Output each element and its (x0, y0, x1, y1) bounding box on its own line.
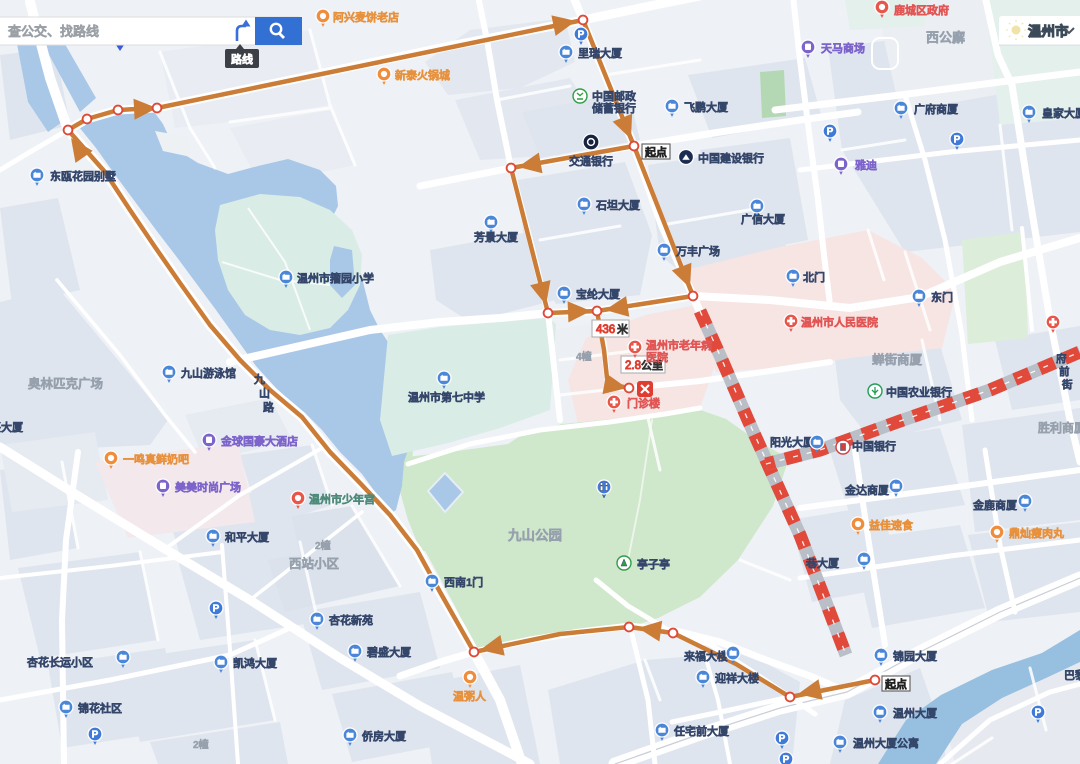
svg-text:温州市: 温州市 (1028, 23, 1069, 39)
svg-text:迎祥大楼: 迎祥大楼 (715, 671, 759, 685)
svg-text:阿兴麦饼老店: 阿兴麦饼老店 (333, 10, 399, 24)
svg-text:九: 九 (253, 372, 265, 386)
svg-text:金鹿商厦: 金鹿商厦 (972, 498, 1018, 512)
svg-text:中国银行: 中国银行 (852, 439, 896, 453)
svg-text:凯鸿大厦: 凯鸿大厦 (233, 656, 278, 670)
svg-text:温州市老年病: 温州市老年病 (646, 338, 712, 352)
svg-text:飞鹏大厦: 飞鹏大厦 (684, 100, 729, 114)
svg-text:金球国豪大酒店: 金球国豪大酒店 (220, 434, 298, 448)
svg-text:西南1门: 西南1门 (444, 575, 483, 589)
svg-text:九山游泳馆: 九山游泳馆 (180, 366, 236, 380)
svg-text:来福大楼: 来福大楼 (683, 649, 728, 663)
svg-text:2幢: 2幢 (193, 738, 209, 751)
svg-text:交通银行: 交通银行 (569, 154, 613, 168)
svg-text:西公廨: 西公廨 (926, 30, 965, 45)
svg-text:九山公园: 九山公园 (507, 528, 562, 543)
svg-text:436: 436 (596, 324, 615, 336)
svg-text:里瑞大厦: 里瑞大厦 (578, 46, 623, 60)
svg-text:4幢: 4幢 (576, 350, 592, 363)
svg-text:雅迪: 雅迪 (855, 158, 877, 172)
svg-text:任宅前大厦: 任宅前大厦 (673, 724, 730, 738)
svg-text:芳景大厦: 芳景大厦 (474, 230, 519, 244)
svg-text:街: 街 (1061, 378, 1073, 391)
svg-text:石坦大厦: 石坦大厦 (595, 198, 641, 212)
svg-text:起点: 起点 (645, 146, 667, 159)
svg-text:北门: 北门 (803, 270, 825, 284)
svg-text:鹿城区政府: 鹿城区政府 (894, 3, 949, 17)
svg-text:广信大厦: 广信大厦 (741, 212, 786, 226)
svg-text:东瓯花园别墅: 东瓯花园别墅 (50, 169, 116, 183)
svg-text:新泰火锅城: 新泰火锅城 (395, 68, 450, 82)
svg-text:温州市人民医院: 温州市人民医院 (801, 315, 878, 329)
svg-text:中国农业银行: 中国农业银行 (886, 385, 952, 399)
svg-text:亭子亭: 亭子亭 (637, 557, 670, 571)
svg-text:皇家大厦: 皇家大厦 (1042, 106, 1080, 120)
svg-text:2幢: 2幢 (315, 539, 331, 552)
svg-text:山: 山 (259, 386, 270, 400)
svg-text:益佳速食: 益佳速食 (869, 518, 914, 532)
svg-text:温州市第七中学: 温州市第七中学 (408, 390, 485, 404)
svg-text:万丰广场: 万丰广场 (675, 244, 720, 258)
svg-text:巷大厦: 巷大厦 (805, 556, 840, 570)
svg-text:广府商厦: 广府商厦 (914, 102, 959, 116)
svg-text:阳光大厦: 阳光大厦 (770, 435, 815, 449)
svg-text:胜利商厦: 胜利商厦 (1038, 420, 1080, 435)
svg-text:门诊楼: 门诊楼 (627, 396, 660, 410)
svg-text:路: 路 (263, 400, 275, 414)
svg-text:金达商厦: 金达商厦 (844, 483, 890, 497)
svg-text:一鸣真鲜奶吧: 一鸣真鲜奶吧 (123, 452, 189, 466)
svg-text:温州大厦: 温州大厦 (893, 706, 938, 720)
svg-text:鼎灿瘦肉丸: 鼎灿瘦肉丸 (1009, 526, 1065, 540)
svg-text:温州市籀园小学: 温州市籀园小学 (297, 271, 374, 285)
svg-text:前: 前 (1059, 365, 1070, 378)
svg-text:起点: 起点 (885, 678, 907, 691)
svg-text:侨房大厦: 侨房大厦 (361, 729, 407, 743)
svg-text:碧盛大厦: 碧盛大厦 (366, 645, 412, 659)
svg-text:蝉街商厦: 蝉街商厦 (872, 352, 923, 367)
svg-text:医院: 医院 (646, 350, 668, 364)
svg-text:中国邮政: 中国邮政 (592, 89, 637, 103)
svg-text:锦园大厦: 锦园大厦 (893, 649, 938, 663)
svg-text:宝纶大厦: 宝纶大厦 (576, 287, 621, 301)
svg-text:兴大厦: 兴大厦 (0, 420, 24, 434)
svg-text:巴黎: 巴黎 (1064, 668, 1080, 682)
svg-text:杏花长运小区: 杏花长运小区 (26, 655, 93, 669)
svg-text:奥林匹克广场: 奥林匹克广场 (28, 376, 103, 391)
svg-text:路线: 路线 (231, 52, 253, 66)
svg-text:温粥人: 温粥人 (453, 689, 487, 703)
svg-text:查公交、找路线: 查公交、找路线 (8, 24, 99, 39)
svg-text:温州大厦公寓: 温州大厦公寓 (853, 736, 919, 750)
svg-text:天马商场: 天马商场 (821, 41, 865, 55)
svg-text:2.8: 2.8 (625, 360, 641, 372)
svg-text:美美时尚广场: 美美时尚广场 (175, 480, 241, 494)
svg-text:府: 府 (1056, 352, 1067, 365)
svg-text:温州市少年宫: 温州市少年宫 (309, 492, 375, 506)
svg-text:米: 米 (617, 323, 628, 336)
svg-text:西站小区: 西站小区 (289, 556, 340, 571)
svg-text:锦花社区: 锦花社区 (78, 701, 122, 715)
svg-text:中国建设银行: 中国建设银行 (698, 151, 764, 165)
svg-text:东门: 东门 (931, 290, 953, 304)
svg-text:杏花新苑: 杏花新苑 (328, 613, 373, 627)
svg-text:和平大厦: 和平大厦 (225, 530, 270, 544)
svg-text:储蓄银行: 储蓄银行 (592, 101, 636, 115)
